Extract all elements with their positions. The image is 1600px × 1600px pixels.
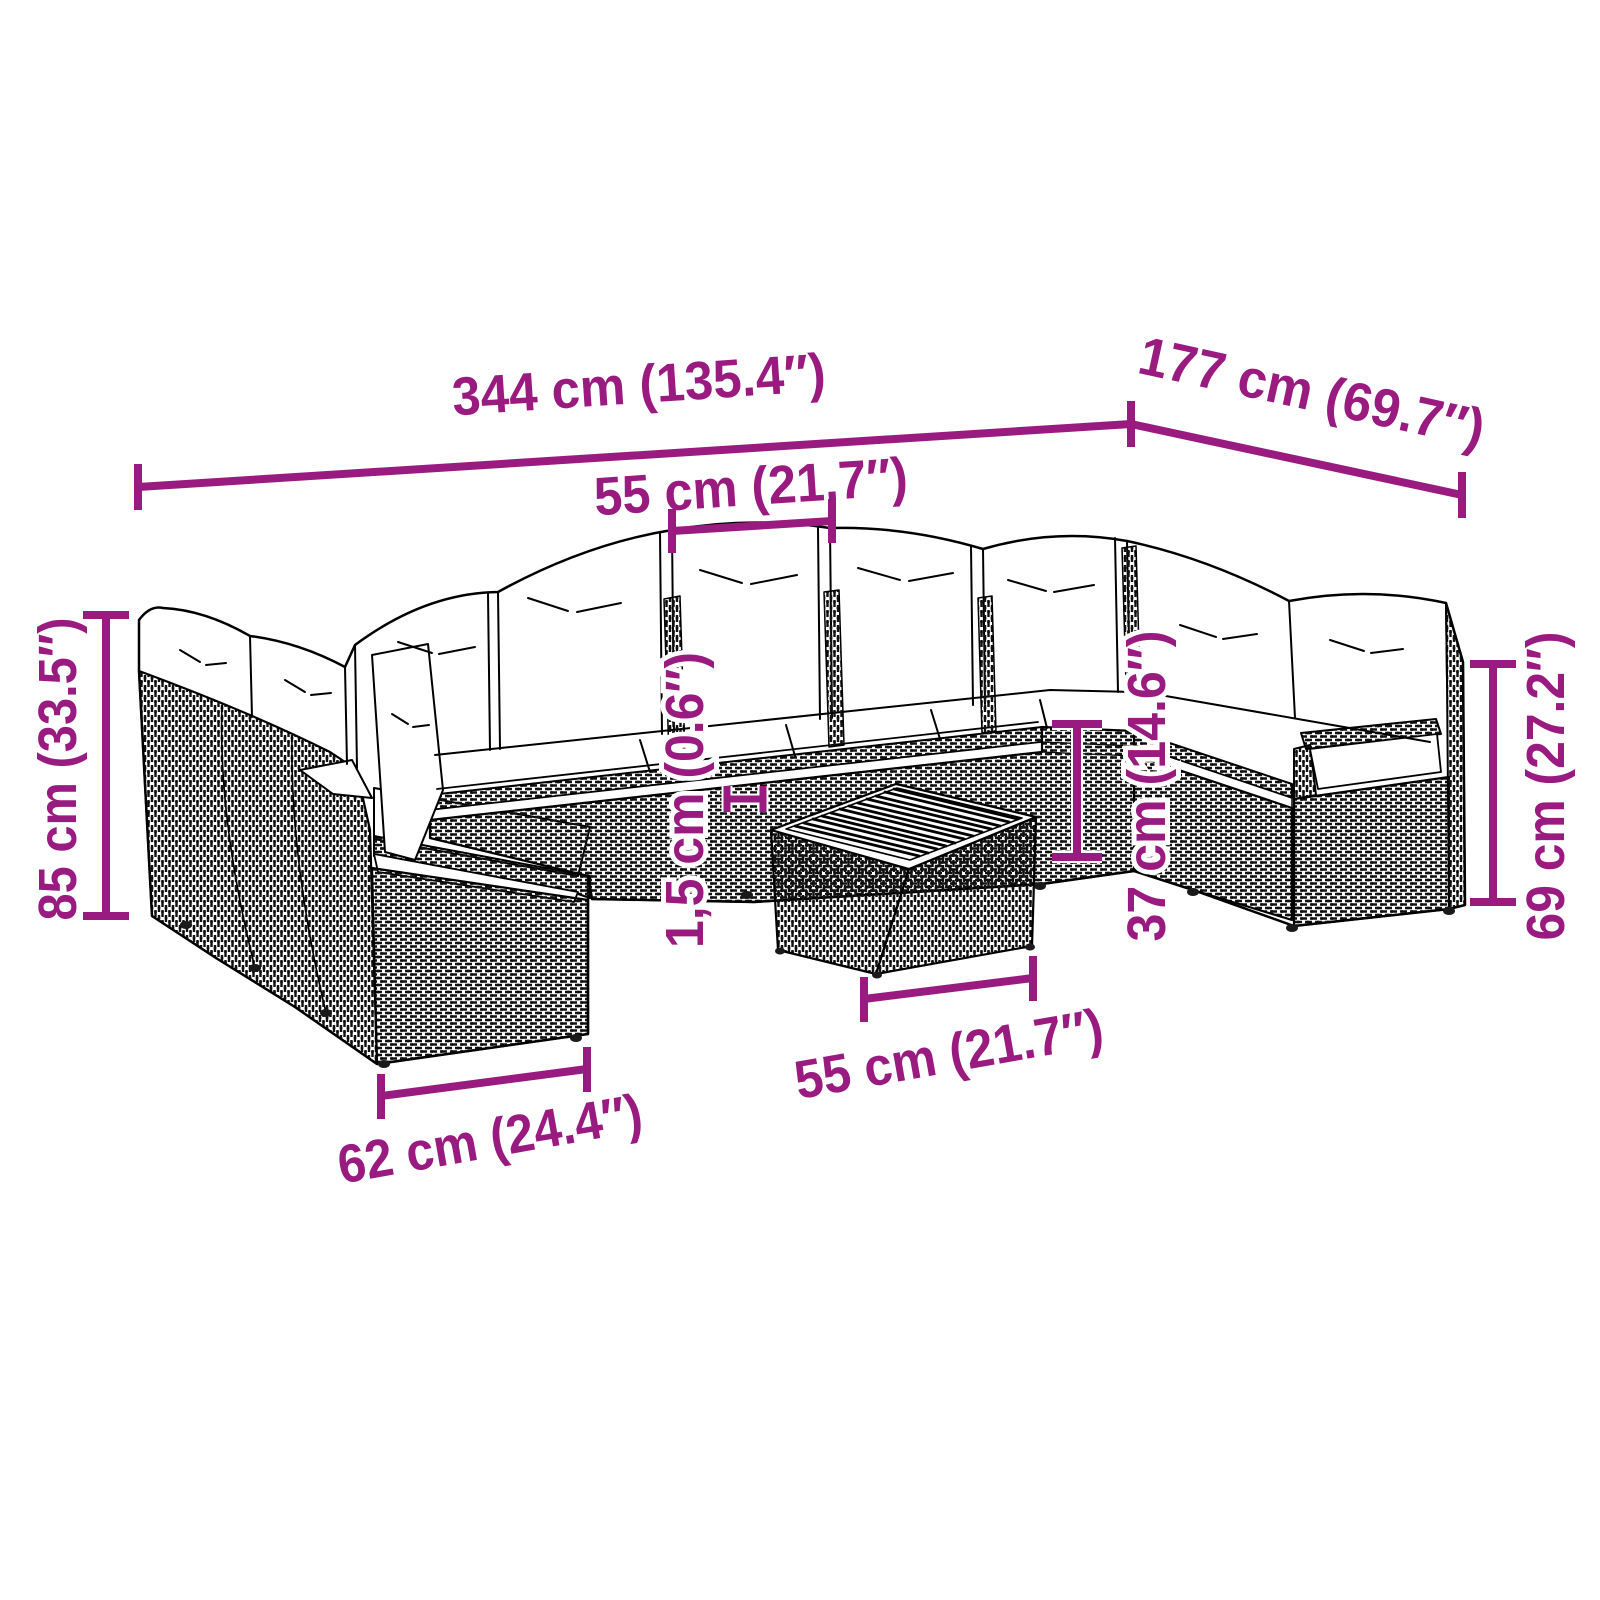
svg-text:69 cm (27.2″): 69 cm (27.2″): [1516, 632, 1576, 941]
svg-text:85 cm (33.5″): 85 cm (33.5″): [28, 618, 88, 921]
svg-text:1,5 cm (0.6″): 1,5 cm (0.6″): [655, 652, 715, 948]
svg-text:37 cm (14.6″): 37 cm (14.6″): [1117, 631, 1177, 942]
